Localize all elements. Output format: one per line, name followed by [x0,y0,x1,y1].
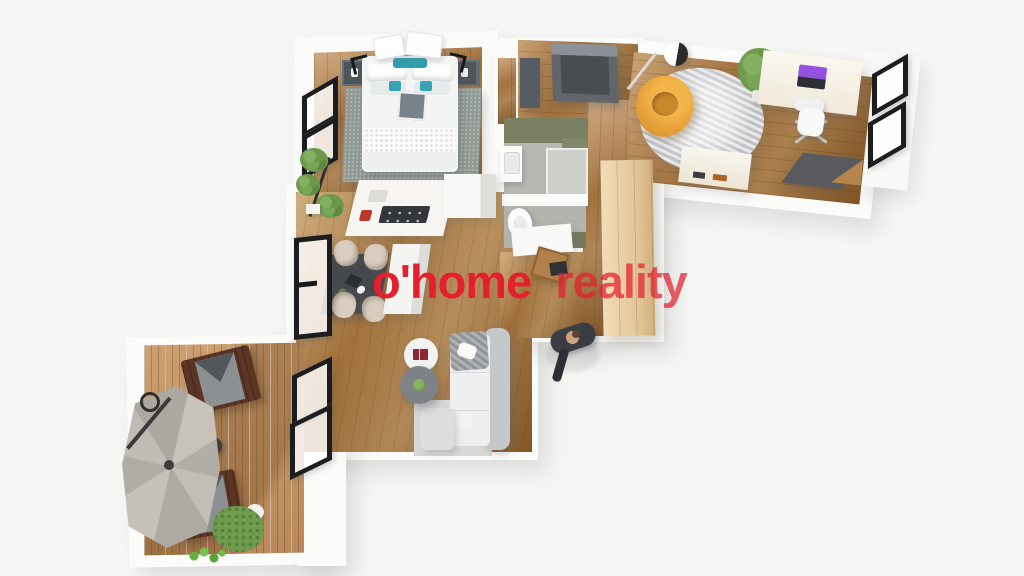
floorplan-scene: o'home reality [0,0,1024,576]
bench-opening [560,55,609,95]
watermark-suffix: reality [555,255,686,308]
person-hair [572,330,580,338]
sofa-ottoman [420,408,454,450]
parasol-center [164,460,174,470]
teal-accent-pillow [420,81,432,91]
cooktop [378,206,430,223]
washbasin [504,152,520,174]
kitchen-island [345,180,457,236]
watermark: o'home reality [372,254,687,309]
plant [296,174,320,196]
window-divider [299,281,317,288]
sideboard-drawer [713,174,728,182]
laptop [797,64,827,89]
wall-art [405,31,444,59]
shower-tray [546,148,588,196]
hallway-wardrobe [600,160,655,337]
double-bed [362,56,458,172]
plant-pot [306,204,320,214]
small-plant [413,379,425,391]
kitchen-counter-item [367,190,388,202]
living-room-window [294,234,332,340]
coffee-table-gray [400,366,438,404]
watermark-brand: o'home [372,255,531,308]
teal-pillow [393,58,427,68]
plant [300,148,328,172]
entry-storage-bench [551,43,619,103]
book [413,349,428,360]
gray-cushion [397,91,427,121]
parasol-hook [140,392,160,412]
table-decor [356,286,365,294]
sideboard-drawer [693,171,706,178]
dotted-blanket [364,128,456,152]
office-chair-seat [796,106,826,137]
kitchen-tall-cabinet [444,174,496,218]
lounge-chair-seat [652,92,678,116]
edge-plants [186,546,226,566]
hall-corridor-floor [498,58,516,124]
duvet-fold [364,152,456,170]
plant [316,194,344,218]
entry-cabinet [520,58,540,108]
arc-lamp-head [664,42,688,66]
bathroom-partition-wall [502,194,588,206]
bathroom-vanity [500,146,522,182]
red-kitchen-item [359,210,373,221]
teal-accent-pillow [389,81,401,91]
